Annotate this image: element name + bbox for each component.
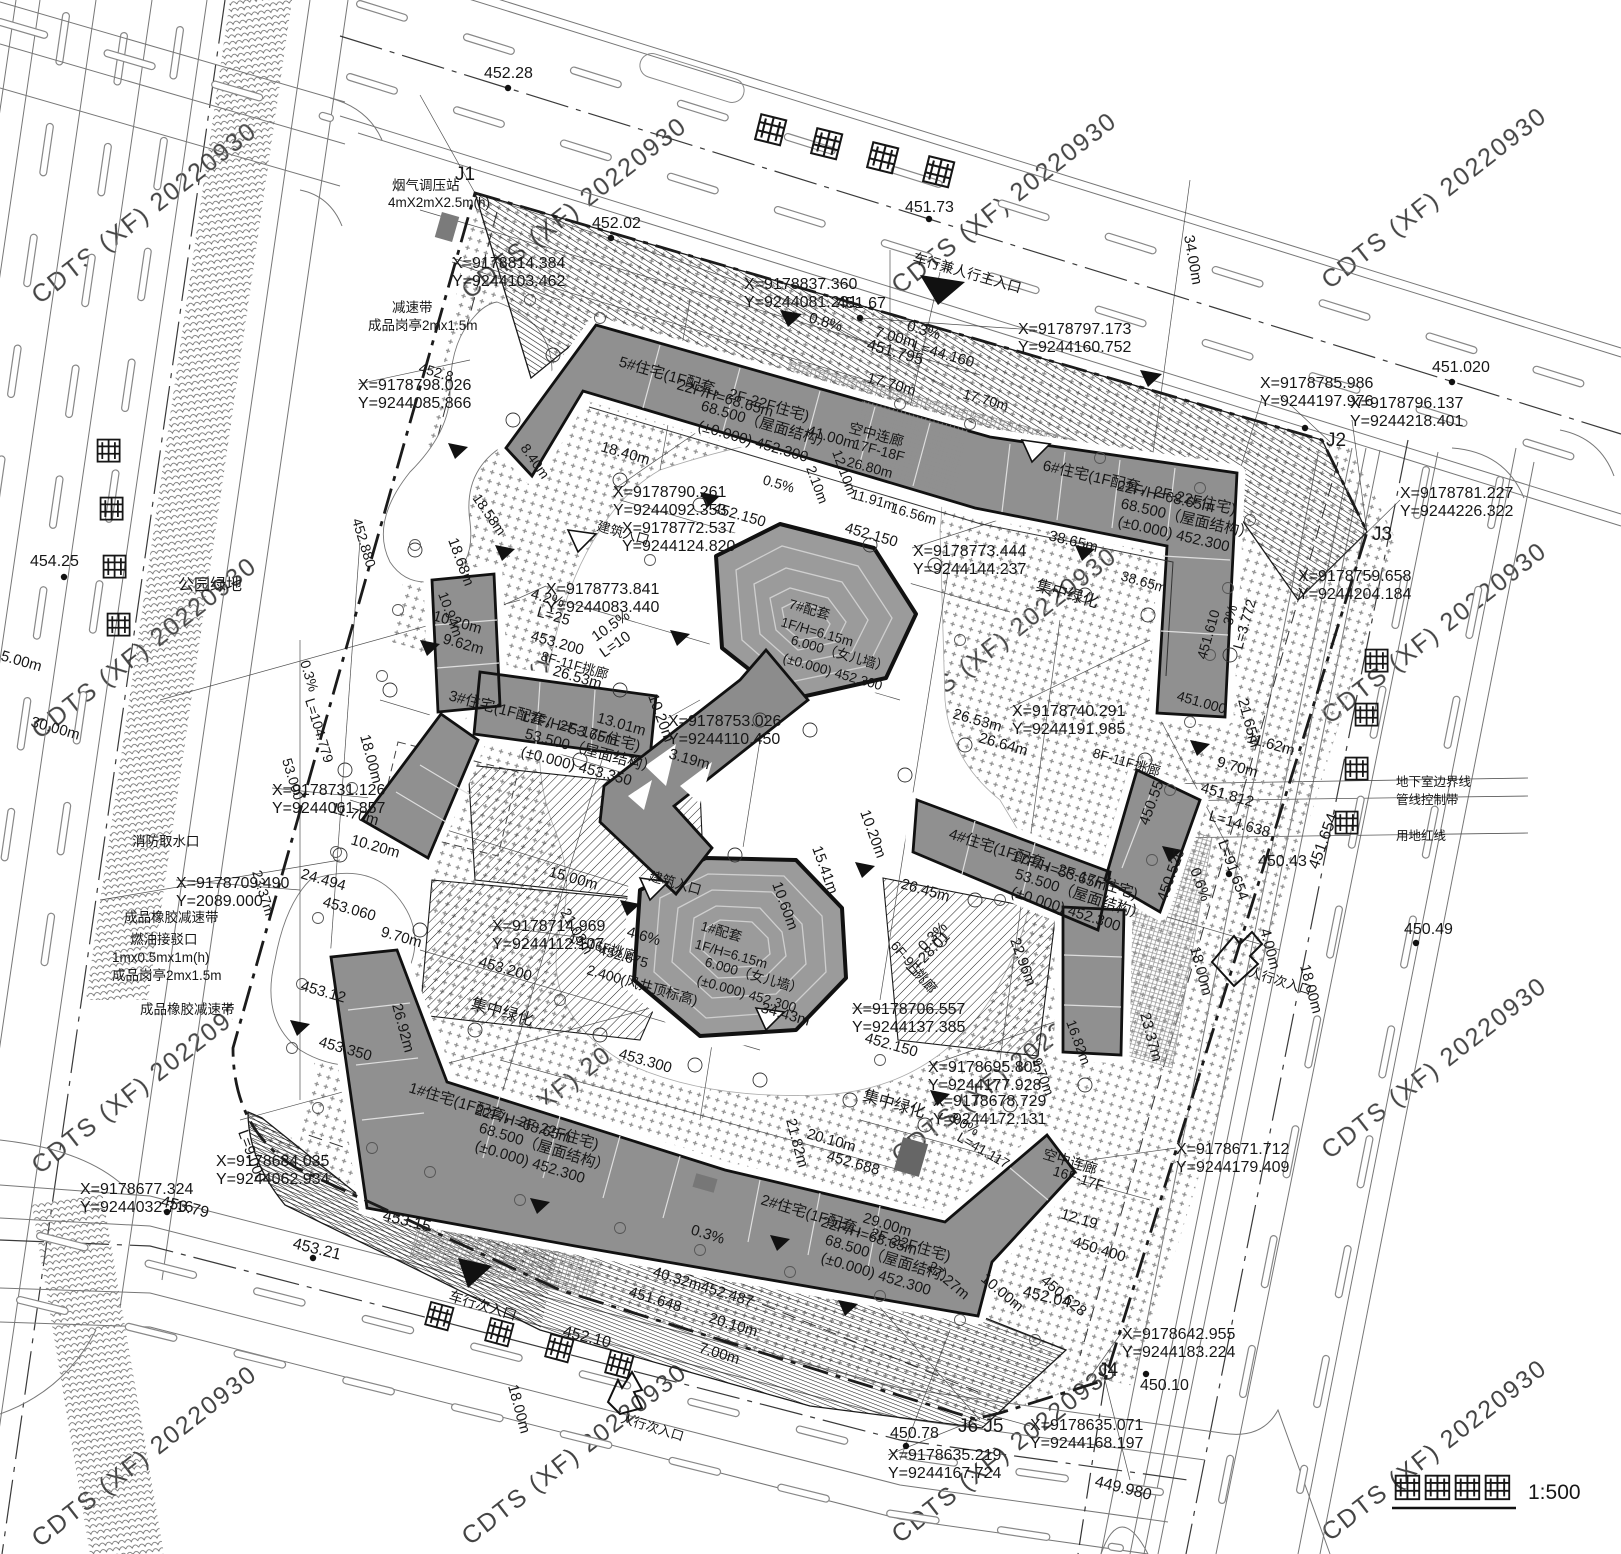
svg-text:成品岗亭2mx1.5m: 成品岗亭2mx1.5m xyxy=(368,317,478,333)
svg-text:Y=9244160.752: Y=9244160.752 xyxy=(1018,339,1132,356)
svg-text:X=9178814.384: X=9178814.384 xyxy=(452,255,566,272)
svg-text:Y=2089.000: Y=2089.000 xyxy=(176,893,263,910)
svg-text:X=9178635.071: X=9178635.071 xyxy=(1030,1417,1144,1434)
svg-text:Y=9244110.450: Y=9244110.450 xyxy=(668,731,780,748)
svg-text:公园绿地: 公园绿地 xyxy=(178,576,242,594)
svg-text:J3: J3 xyxy=(1372,524,1392,545)
svg-text:Y=9244103.462: Y=9244103.462 xyxy=(452,273,566,290)
svg-text:J2: J2 xyxy=(1326,430,1346,451)
svg-text:X=9178797.173: X=9178797.173 xyxy=(1018,321,1132,338)
svg-text:成品岗亭2mx1.5m: 成品岗亭2mx1.5m xyxy=(112,967,222,983)
svg-text:X=9178781.227: X=9178781.227 xyxy=(1400,485,1514,502)
svg-text:Y=9244167.724: Y=9244167.724 xyxy=(888,1465,1002,1482)
svg-text:X=9178677.324: X=9178677.324 xyxy=(80,1181,194,1198)
svg-text:X=9178684.035: X=9178684.035 xyxy=(216,1153,330,1170)
svg-text:X=9178790.261: X=9178790.261 xyxy=(613,484,727,501)
svg-text:J4: J4 xyxy=(1098,1360,1119,1381)
svg-text:X=9178642.955: X=9178642.955 xyxy=(1122,1326,1236,1343)
svg-text:Y=9244218.401: Y=9244218.401 xyxy=(1350,413,1464,430)
svg-text:J6 J5: J6 J5 xyxy=(958,1416,1003,1437)
svg-text:451.020: 451.020 xyxy=(1432,359,1490,376)
svg-text:地下室边界线: 地下室边界线 xyxy=(1396,774,1472,789)
svg-text:454.25: 454.25 xyxy=(30,553,79,570)
svg-text:1:500: 1:500 xyxy=(1528,1481,1581,1504)
svg-text:4mX2mX2.5m(h): 4mX2mX2.5m(h) xyxy=(388,195,490,210)
svg-text:X=9178773.444: X=9178773.444 xyxy=(913,543,1027,560)
svg-text:X=9178785.986: X=9178785.986 xyxy=(1260,375,1374,392)
svg-text:用地红线: 用地红线 xyxy=(1396,828,1447,843)
svg-text:成品橡胶减速带: 成品橡胶减速带 xyxy=(124,909,219,925)
svg-text:X=9178796.137: X=9178796.137 xyxy=(1350,395,1464,412)
svg-text:X=9178635.219: X=9178635.219 xyxy=(888,1447,1002,1464)
svg-text:Y=9244144.237: Y=9244144.237 xyxy=(913,561,1027,578)
svg-text:Y=9244226.322: Y=9244226.322 xyxy=(1400,503,1514,520)
svg-text:450.49: 450.49 xyxy=(1404,921,1453,938)
svg-text:X=9178709.490: X=9178709.490 xyxy=(176,875,290,892)
svg-text:烟气调压站: 烟气调压站 xyxy=(392,178,460,193)
svg-text:减速带: 减速带 xyxy=(392,300,433,315)
svg-text:成品橡胶减速带: 成品橡胶减速带 xyxy=(140,1001,235,1017)
svg-text:X=9178753.026: X=9178753.026 xyxy=(668,713,782,730)
svg-text:Y=9244062.934: Y=9244062.934 xyxy=(216,1171,330,1188)
svg-text:X=9178706.557: X=9178706.557 xyxy=(852,1001,966,1018)
svg-text:452.28: 452.28 xyxy=(484,65,533,82)
svg-text:451.73: 451.73 xyxy=(905,199,954,216)
svg-text:燃油接驳口: 燃油接驳口 xyxy=(130,931,198,947)
svg-text:X=9178740.291: X=9178740.291 xyxy=(1012,703,1126,720)
svg-text:Y=9244168.197: Y=9244168.197 xyxy=(1030,1435,1144,1452)
svg-text:451.67: 451.67 xyxy=(837,295,886,312)
svg-text:Y=9244179.409: Y=9244179.409 xyxy=(1176,1159,1290,1176)
svg-text:X=9178695.805: X=9178695.805 xyxy=(928,1059,1042,1076)
svg-text:1mx0.5mx1m(h): 1mx0.5mx1m(h) xyxy=(112,950,210,965)
svg-text:消防取水口: 消防取水口 xyxy=(132,834,200,849)
svg-text:X=9178671.712: X=9178671.712 xyxy=(1176,1141,1290,1158)
svg-text:X=9178678.729: X=9178678.729 xyxy=(933,1093,1047,1110)
svg-text:Y=9244177.928: Y=9244177.928 xyxy=(928,1077,1042,1094)
svg-text:450.10: 450.10 xyxy=(1140,1377,1189,1394)
svg-text:X=9178714.969: X=9178714.969 xyxy=(492,918,606,935)
svg-text:管线控制带: 管线控制带 xyxy=(1396,792,1459,807)
svg-text:X=9178837.360: X=9178837.360 xyxy=(744,276,858,293)
svg-text:X=9178798.026: X=9178798.026 xyxy=(358,377,472,394)
svg-text:Y=9244191.985: Y=9244191.985 xyxy=(1012,721,1126,738)
svg-text:Y=9244183.224: Y=9244183.224 xyxy=(1122,1344,1236,1361)
svg-text:Y=9244204.184: Y=9244204.184 xyxy=(1298,586,1412,603)
svg-text:450.78: 450.78 xyxy=(890,1425,939,1442)
svg-text:Y=9244092.353: Y=9244092.353 xyxy=(613,502,727,519)
